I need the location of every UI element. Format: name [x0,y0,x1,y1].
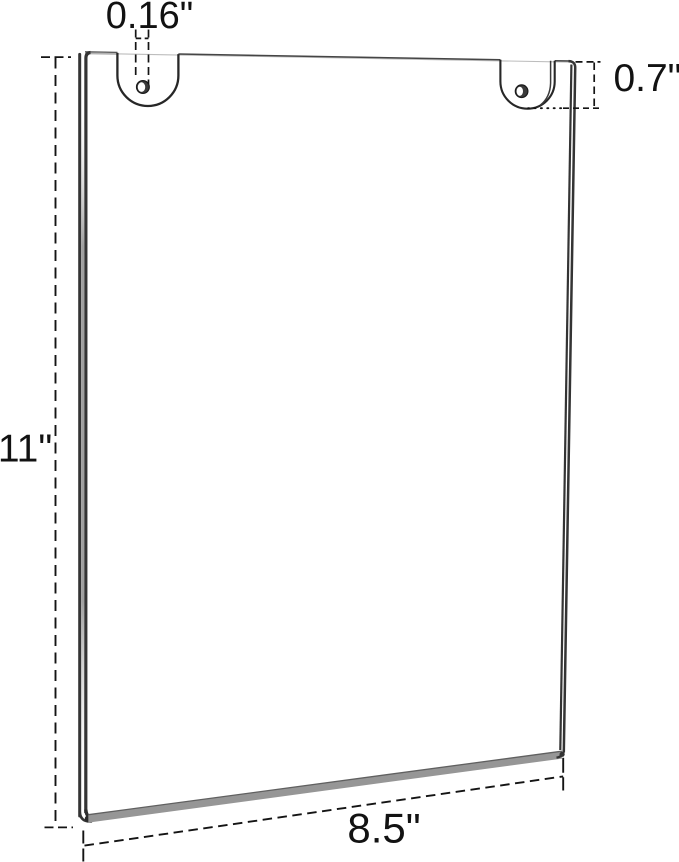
svg-text:8.5": 8.5" [347,805,420,852]
svg-text:0.16": 0.16" [106,0,193,37]
svg-text:0.7": 0.7" [613,57,679,100]
svg-text:11": 11" [0,428,52,471]
